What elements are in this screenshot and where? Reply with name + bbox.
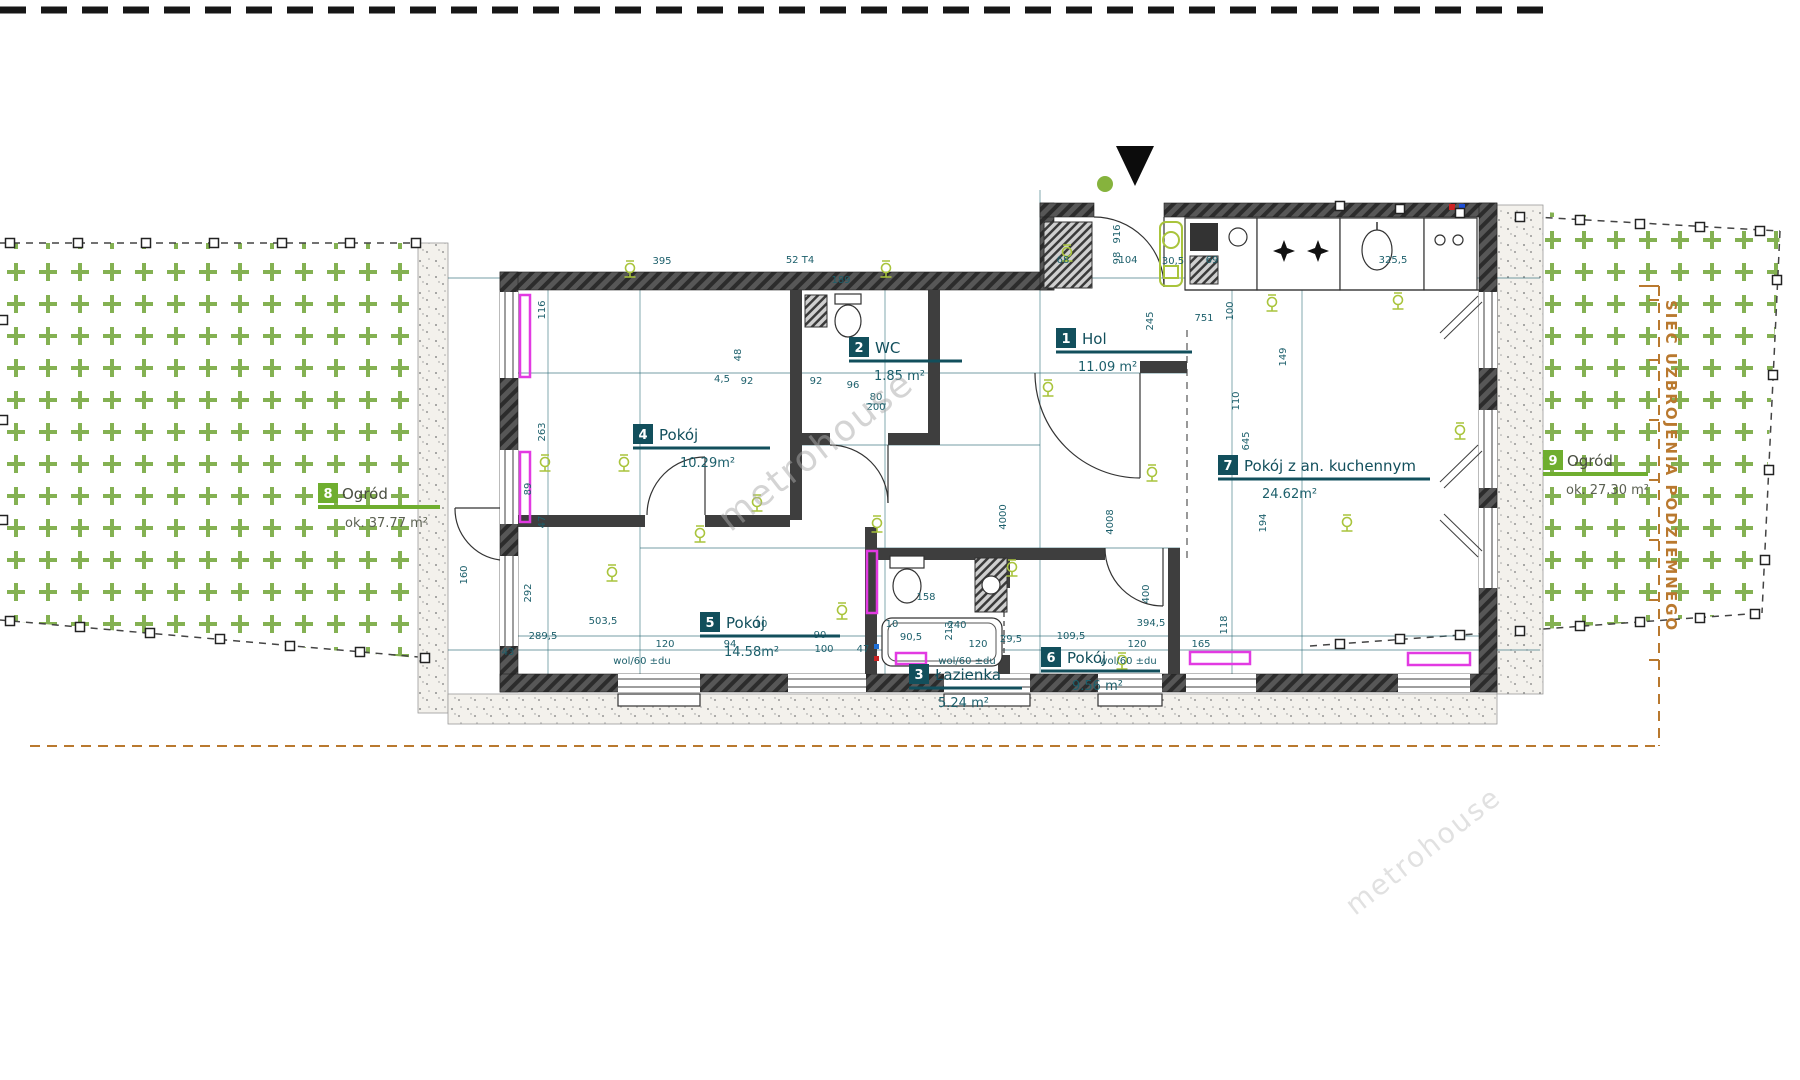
room-name: Pokój — [659, 426, 698, 444]
boundary-marker-icon — [1336, 640, 1345, 649]
ceiling-light-icon — [1455, 423, 1466, 439]
wc-fixtures — [805, 294, 861, 337]
dimension-label: 118 — [1219, 615, 1230, 634]
garden-name: Ogród — [1567, 452, 1613, 470]
dimension-label: 292 — [523, 583, 534, 602]
dimension-label: 325,5 — [1379, 255, 1408, 266]
room-number: 1 — [1061, 332, 1070, 347]
boundary-marker-icon — [1396, 205, 1405, 214]
boundary-marker-icon — [1516, 627, 1525, 636]
garden-number: 8 — [323, 487, 332, 502]
dimension-label: 916 — [1112, 224, 1123, 243]
dimension-label: 43 — [502, 647, 515, 658]
ceiling-light-icon — [607, 565, 618, 581]
boundary-marker-icon — [412, 239, 421, 248]
boundary-marker-icon — [0, 316, 8, 325]
dimension-label: 4000 — [998, 504, 1009, 529]
dimension-label: 90,5 — [900, 632, 922, 643]
boundary-marker-icon — [1756, 227, 1765, 236]
entrance-light-icon — [1097, 176, 1113, 192]
dimension-label: 100 — [1225, 301, 1236, 320]
dimension-label: 30,5 — [1162, 256, 1184, 267]
dimension-label: 100 — [814, 644, 833, 655]
ceiling-light-icon — [619, 455, 630, 471]
dimension-label: 109,5 — [1057, 631, 1086, 642]
floor-plan-page: SIEĆ UZBROJENIA PODZIEMNEGO — [0, 0, 1800, 1080]
dimension-label: 149 — [1278, 347, 1289, 366]
boundary-marker-icon — [216, 635, 225, 644]
dimension-label: 394,5 — [1137, 618, 1166, 629]
dimension-label: 395 — [652, 256, 671, 267]
room-name: Pokój — [726, 614, 765, 632]
room-name: WC — [875, 339, 900, 357]
ceiling-light-icon — [1267, 295, 1278, 311]
dimension-label: wol/60 ±du — [1099, 656, 1156, 667]
watermark: metrohouse — [711, 362, 922, 540]
boundary-marker-icon — [142, 239, 151, 248]
room-number: 2 — [854, 341, 863, 356]
ceiling-light-icon — [540, 455, 551, 471]
boundary-marker-icon — [74, 239, 83, 248]
dimension-label: 245 — [1145, 311, 1156, 330]
room-label-pokoj-7: 7 Pokój z an. kuchennym 24.62m² — [1218, 455, 1430, 502]
dimension-label: 92 — [810, 376, 823, 387]
boundary-marker-icon — [6, 239, 15, 248]
dimension-label: 120 — [1127, 639, 1146, 650]
ceiling-light-icon — [1043, 380, 1054, 396]
boundary-marker-icon — [1696, 614, 1705, 623]
utility-note: SIEĆ UZBROJENIA PODZIEMNEGO — [1662, 300, 1681, 632]
room-name: Pokój — [1067, 649, 1106, 667]
room-name: Pokój z an. kuchennym — [1244, 457, 1416, 475]
boundary-marker-icon — [1769, 371, 1778, 380]
dimension-label: 110 — [1231, 391, 1242, 410]
dimension-label: 29,5 — [1000, 634, 1022, 645]
dimension-label: 96 — [847, 380, 860, 391]
boundary-marker-icon — [1636, 618, 1645, 627]
room-number: 5 — [705, 616, 714, 631]
boundary-marker-icon — [1456, 631, 1465, 640]
boundary-marker-icon — [0, 516, 8, 525]
dimension-label: 158 — [916, 592, 935, 603]
watermark: metrohouse — [1339, 780, 1507, 922]
boundary-marker-icon — [1516, 213, 1525, 222]
garden-area: ok. 27.30 m² — [1566, 483, 1649, 498]
room-area: 24.62m² — [1262, 487, 1317, 502]
boundary-marker-icon — [76, 623, 85, 632]
boundary-marker-icon — [1696, 223, 1705, 232]
room-area: 11.09 m² — [1078, 360, 1137, 375]
room-area: 10.29m² — [680, 456, 735, 471]
floor-plan-drawing: SIEĆ UZBROJENIA PODZIEMNEGO — [0, 0, 1800, 1080]
ceiling-light-icon — [1342, 515, 1353, 531]
dimension-label: 751 — [1194, 313, 1213, 324]
boundary-marker-icon — [146, 629, 155, 638]
garden-name: Ogród — [342, 485, 388, 503]
boundary-marker-icon — [286, 642, 295, 651]
dimension-label: 120 — [655, 639, 674, 650]
dimension-label: 4008 — [1105, 509, 1116, 534]
room-number: 4 — [638, 428, 647, 443]
boundary-marker-icon — [1761, 556, 1770, 565]
dimension-label: 92 — [741, 376, 754, 387]
garden-area: ok. 37.77 m² — [345, 516, 428, 531]
boundary-marker-icon — [1773, 276, 1782, 285]
entrance-arrow-icon — [1116, 146, 1154, 186]
hot-water-valve-icon — [874, 656, 879, 661]
room-label-pokoj-4: 4 Pokój 10.29m² — [633, 424, 770, 471]
room-area: 14.58m² — [724, 645, 779, 660]
boundary-marker-icon — [1456, 209, 1465, 218]
garden-number: 9 — [1548, 454, 1557, 469]
dimension-label: 47 — [857, 644, 870, 655]
dimension-label: 48 — [733, 349, 744, 362]
boundary-marker-icon — [356, 648, 365, 657]
room-number: 3 — [914, 668, 923, 683]
boundary-marker-icon — [1576, 622, 1585, 631]
boundary-marker-icon — [1336, 202, 1345, 211]
boundary-marker-icon — [1396, 635, 1405, 644]
dimension-label: 116 — [537, 300, 548, 319]
ceiling-light-icon — [1147, 465, 1158, 481]
dimension-label: 165 — [1191, 639, 1210, 650]
dimension-label: 98 — [1112, 252, 1123, 265]
dimension-label: 52 T4 — [786, 255, 814, 266]
ceiling-light-icon — [695, 526, 706, 542]
dimension-label: 89 — [523, 483, 534, 496]
hot-water-valve-icon — [1449, 204, 1455, 210]
dimension-label: 400 — [1141, 584, 1152, 603]
room-area: 9.56 m² — [1072, 679, 1123, 694]
boundary-marker-icon — [1765, 466, 1774, 475]
room-name: Hol — [1082, 330, 1107, 348]
room-number: 7 — [1223, 459, 1232, 474]
boundary-marker-icon — [0, 416, 8, 425]
boundary-marker-icon — [1751, 610, 1760, 619]
dimension-label: 289,5 — [529, 631, 558, 642]
dimension-label: 47 — [537, 516, 548, 529]
dimension-label: 240 — [947, 620, 966, 631]
dimension-label: 189 — [831, 275, 850, 286]
room-area: 5.24 m² — [938, 696, 989, 711]
dimension-label: 69 — [1206, 255, 1219, 266]
entrance — [1097, 146, 1154, 192]
boiler — [1160, 222, 1182, 286]
ceiling-light-icon — [837, 603, 848, 619]
boundary-marker-icon — [346, 239, 355, 248]
boundary-marker-icon — [6, 617, 15, 626]
dimension-label: 160 — [459, 565, 470, 584]
garden-left — [0, 243, 430, 658]
dimension-label: 194 — [1258, 513, 1269, 532]
room-number: 6 — [1046, 651, 1055, 666]
boundary-marker-icon — [421, 654, 430, 663]
boundary-marker-icon — [278, 239, 287, 248]
dimension-label: 4,5 — [714, 374, 730, 385]
dimension-label: 68 — [1057, 255, 1070, 266]
boundary-marker-icon — [1576, 216, 1585, 225]
boundary-marker-icon — [1636, 220, 1645, 229]
room-name: Łazienka — [934, 666, 1001, 684]
dimension-label: 10 — [886, 619, 899, 630]
dimension-label: 120 — [968, 639, 987, 650]
cold-water-valve-icon — [874, 644, 879, 649]
dimension-label: 645 — [1241, 431, 1252, 450]
dimension-label: wol/60 ±du — [613, 656, 670, 667]
boundary-marker-icon — [210, 239, 219, 248]
dimension-label: 263 — [537, 422, 548, 441]
ceiling-light-icon — [1393, 293, 1404, 309]
dimension-label: 503,5 — [589, 616, 618, 627]
